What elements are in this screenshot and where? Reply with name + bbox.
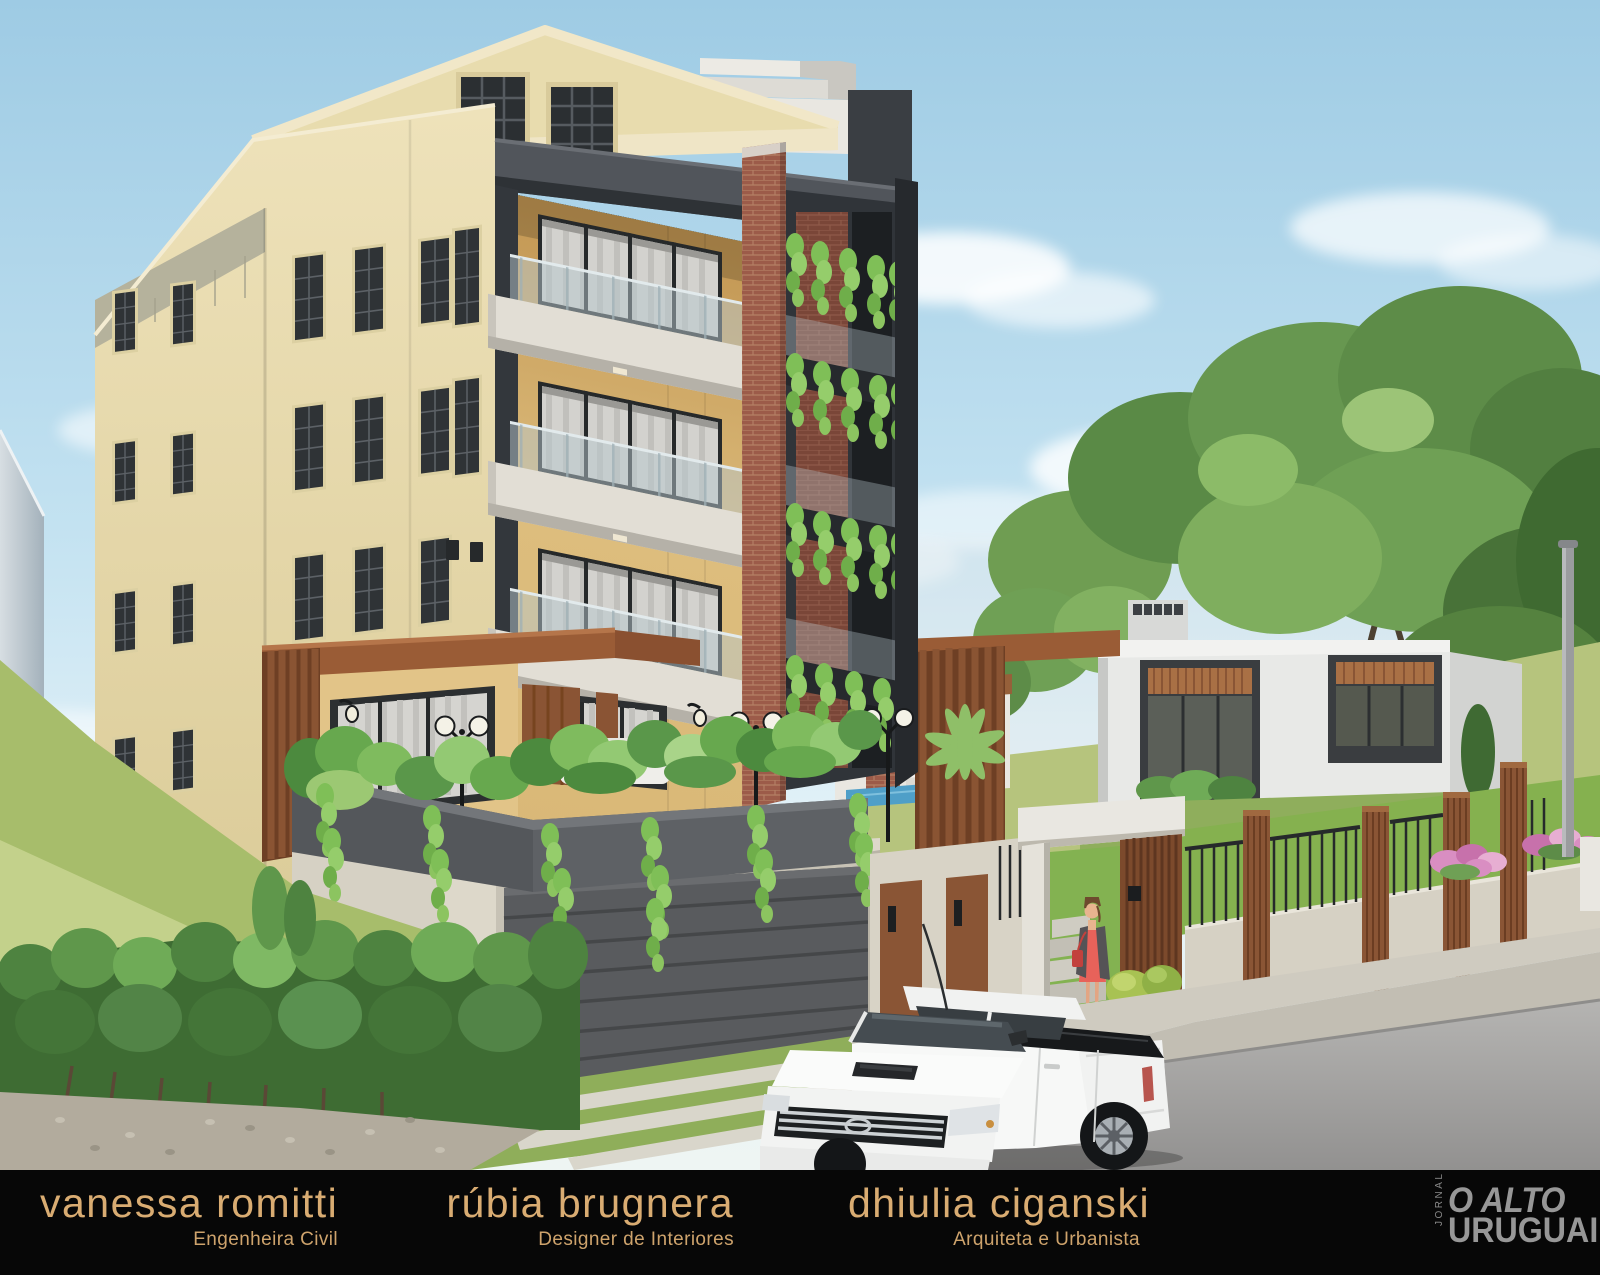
credit-name: vanessa romitti (40, 1183, 338, 1224)
credit-role: Designer de Interiores (444, 1229, 734, 1251)
truck-taillight (1142, 1066, 1154, 1102)
gate-post (1580, 837, 1600, 911)
credit-dhiulia-ciganski: dhiulia ciganski Arquiteta e Urbanista (848, 1183, 1140, 1251)
logo-kicker: JORNAL (1434, 1190, 1445, 1226)
brick-pillar (742, 142, 786, 810)
jornal-o-alto-uruguai-logo: JORNAL O ALTO URUGUAI (1434, 1186, 1600, 1246)
render-page: vanessa romitti Engenheira Civil rúbia b… (0, 0, 1600, 1275)
architectural-render-scene (0, 0, 1600, 1170)
credit-vanessa-romitti: vanessa romitti Engenheira Civil (40, 1183, 338, 1251)
credits-bar: vanessa romitti Engenheira Civil rúbia b… (0, 1170, 1600, 1275)
logo-main: O ALTO URUGUAI (1448, 1186, 1598, 1246)
credit-rubia-brugnera: rúbia brugnera Designer de Interiores (444, 1183, 734, 1251)
credit-name: rúbia brugnera (444, 1183, 734, 1224)
house-window-right (1328, 655, 1442, 763)
green-balcony-bay (786, 178, 918, 790)
credit-role: Engenheira Civil (40, 1229, 338, 1251)
credit-role: Arquiteta e Urbanista (848, 1229, 1140, 1251)
credit-name: dhiulia ciganski (848, 1183, 1140, 1224)
logo-line2: URUGUAI (1448, 1216, 1598, 1246)
house-window-left (1136, 660, 1260, 804)
